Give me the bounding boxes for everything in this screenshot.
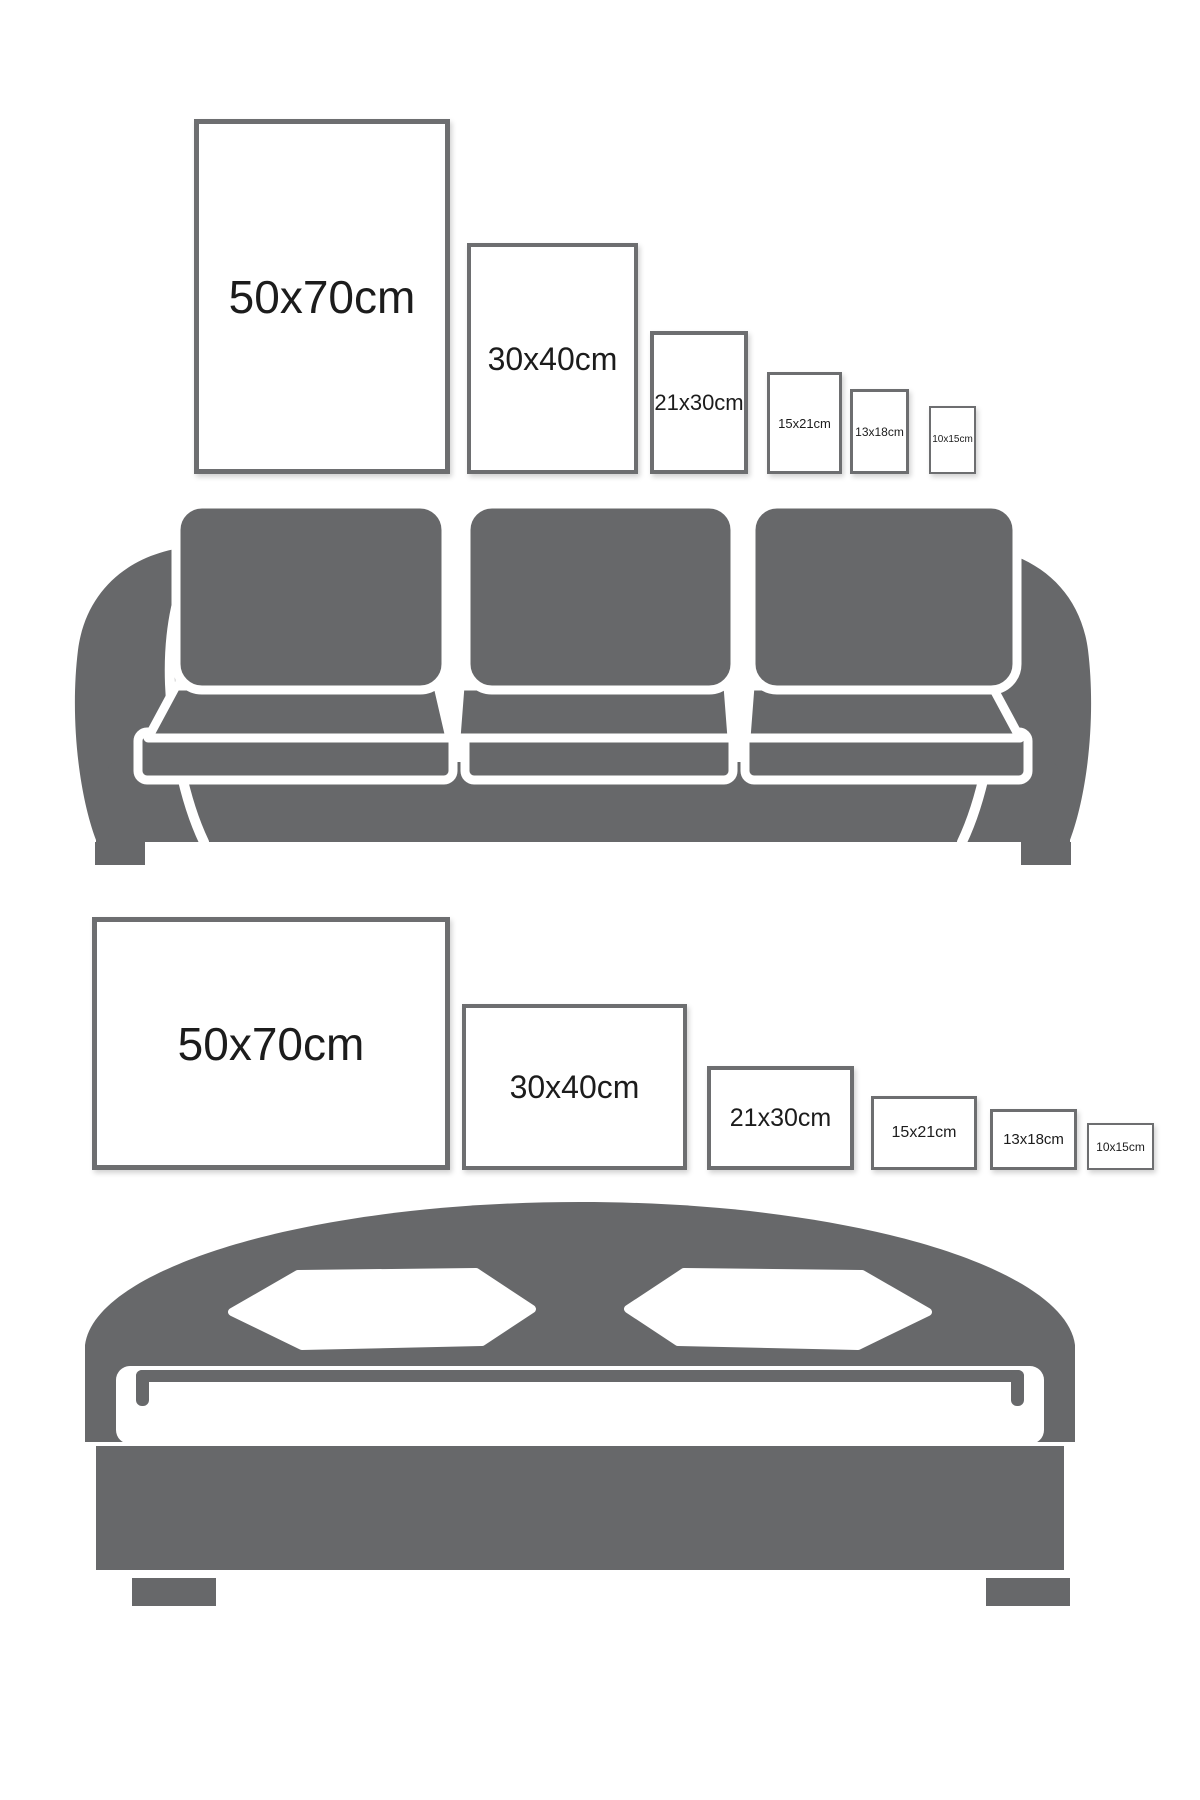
bed-left-leg — [132, 1578, 216, 1606]
size-label: 15x21cm — [778, 417, 831, 430]
size-frame-portrait-10x15: 10x15cm — [929, 406, 976, 474]
size-label: 10x15cm — [932, 435, 973, 445]
size-label: 13x18cm — [855, 426, 904, 438]
bed-icon — [40, 1190, 1120, 1610]
bed-seam-end-right — [1011, 1370, 1024, 1406]
bed-seam-bar — [136, 1370, 1024, 1382]
sofa-back-cushion-3 — [751, 504, 1017, 690]
bed-seam-end-left — [136, 1370, 149, 1406]
size-label: 30x40cm — [510, 1071, 640, 1103]
size-frame-portrait-50x70: 50x70cm — [194, 119, 450, 474]
size-frame-landscape-15x21: 15x21cm — [871, 1096, 977, 1170]
size-frame-landscape-21x30: 21x30cm — [707, 1066, 854, 1170]
sofa-left-leg — [95, 842, 145, 865]
size-frame-landscape-10x15: 10x15cm — [1087, 1123, 1154, 1170]
size-frame-landscape-50x70: 50x70cm — [92, 917, 450, 1170]
size-frame-landscape-13x18: 13x18cm — [990, 1109, 1077, 1170]
sofa-back-cushion-1 — [176, 504, 446, 690]
sofa-right-leg — [1021, 842, 1071, 865]
size-label: 50x70cm — [229, 274, 416, 320]
size-frame-portrait-15x21: 15x21cm — [767, 372, 842, 474]
sofa-icon — [38, 500, 1128, 866]
size-frame-portrait-30x40: 30x40cm — [467, 243, 638, 474]
size-guide-diagram: 50x70cm 30x40cm 21x30cm 15x21cm 13x18cm … — [0, 0, 1200, 1800]
size-label: 21x30cm — [730, 1106, 831, 1131]
bed-base — [96, 1446, 1064, 1570]
size-label: 50x70cm — [178, 1021, 365, 1067]
size-label: 15x21cm — [892, 1125, 957, 1141]
sofa-back-cushion-2 — [466, 504, 735, 690]
size-frame-portrait-13x18: 13x18cm — [850, 389, 909, 474]
bed-left-pillow — [232, 1272, 532, 1346]
bed-right-pillow — [628, 1272, 928, 1346]
bed-right-leg — [986, 1578, 1070, 1606]
size-label: 10x15cm — [1096, 1141, 1145, 1153]
size-label: 21x30cm — [654, 392, 743, 414]
size-label: 13x18cm — [1003, 1132, 1064, 1147]
size-frame-portrait-21x30: 21x30cm — [650, 331, 748, 474]
size-label: 30x40cm — [488, 343, 618, 375]
size-frame-landscape-30x40: 30x40cm — [462, 1004, 687, 1170]
